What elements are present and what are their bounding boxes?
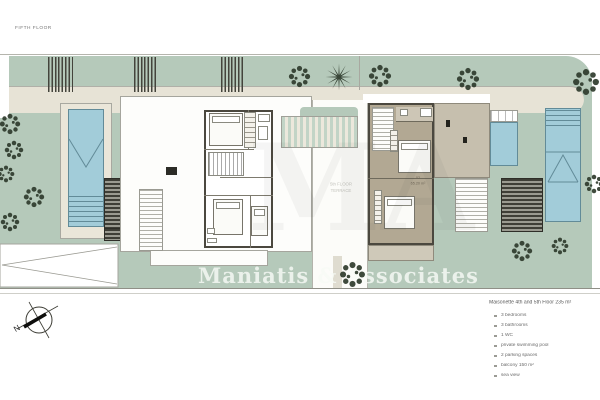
- bed: [209, 113, 243, 146]
- bush-icon: [0, 212, 20, 232]
- bush-icon: [0, 165, 15, 183]
- pool-steps-left: [69, 196, 103, 222]
- bullet-icon: [494, 325, 497, 328]
- plunge-pool: [490, 122, 518, 166]
- legend-item: private swimming pool: [494, 343, 560, 349]
- bullet-icon: [494, 345, 497, 348]
- bullet-icon: [494, 355, 497, 358]
- pergola-louvers: [134, 57, 158, 92]
- bullet-icon: [494, 365, 497, 368]
- compass-icon: [17, 302, 58, 338]
- planter: [300, 107, 358, 116]
- legend-item: 3 bathrooms: [494, 323, 534, 329]
- bush-icon: [4, 140, 24, 160]
- compass-north-label: N: [12, 323, 22, 334]
- legend-item-label: sea view: [501, 373, 520, 378]
- legend-item-label: balcony 150 m²: [501, 363, 534, 368]
- staircase: [208, 152, 244, 176]
- bush-icon: [551, 237, 569, 255]
- bush-icon: [511, 240, 533, 262]
- legend-item: 3 bedrooms: [494, 313, 532, 319]
- legend-heading: Maisonette 4th and 5th Floor 235 m²: [489, 300, 583, 305]
- right-unit-top-strip: [363, 94, 490, 103]
- louver-roof-right: [501, 178, 543, 232]
- pool-steps-right: [546, 110, 580, 130]
- bed-pillow: [212, 116, 240, 123]
- bush-icon: [0, 113, 21, 135]
- bush-icon: [572, 68, 600, 96]
- legend-item: sea view: [494, 373, 524, 379]
- pool-steps-box: [490, 110, 518, 122]
- floor-title: FIFTH FLOOR: [15, 26, 52, 31]
- ghost-watermark: MA: [248, 118, 474, 259]
- terrace-table: [166, 167, 177, 175]
- bush-icon: [339, 261, 366, 288]
- palm-tree-icon: [324, 62, 354, 92]
- bush-icon: [288, 65, 311, 88]
- floor-plan-canvas: FIFTH FLOOR 5th FLOOR TERRACE: [0, 0, 600, 400]
- bullet-icon: [494, 335, 497, 338]
- bathroom-sink: [400, 109, 408, 116]
- legend-item-label: 2 parking spaces: [501, 353, 537, 358]
- bed-pillow: [216, 202, 240, 209]
- pergola-louvers: [221, 57, 244, 92]
- bush-icon: [584, 174, 600, 194]
- bathroom-sink: [207, 238, 217, 243]
- pergola-louvers: [48, 57, 73, 92]
- bed: [213, 199, 243, 235]
- legend-item: balcony 150 m²: [494, 363, 542, 369]
- legend-item: 1 WC: [494, 333, 516, 339]
- legend-item-label: 3 bedrooms: [501, 313, 526, 318]
- bush-icon: [456, 67, 480, 91]
- bullet-icon: [494, 375, 497, 378]
- plot-divider-line: [359, 56, 360, 90]
- bathroom-wc: [420, 108, 432, 117]
- bullet-icon: [494, 315, 497, 318]
- site-boundary-line: [0, 54, 600, 55]
- bush-icon: [23, 186, 45, 208]
- legend-item-label: private swimming pool: [501, 343, 548, 348]
- road-line: [0, 288, 600, 289]
- legend-item: 2 parking spaces: [494, 353, 546, 359]
- terrace-stairs: [139, 189, 163, 251]
- site-notch: [0, 56, 9, 118]
- interior-wall: [204, 149, 254, 150]
- legend-item-label: 1 WC: [501, 333, 513, 338]
- bathroom-wc: [207, 228, 215, 234]
- bush-icon: [368, 64, 392, 88]
- road-line: [0, 293, 600, 294]
- legend-item-label: 3 bathrooms: [501, 323, 528, 328]
